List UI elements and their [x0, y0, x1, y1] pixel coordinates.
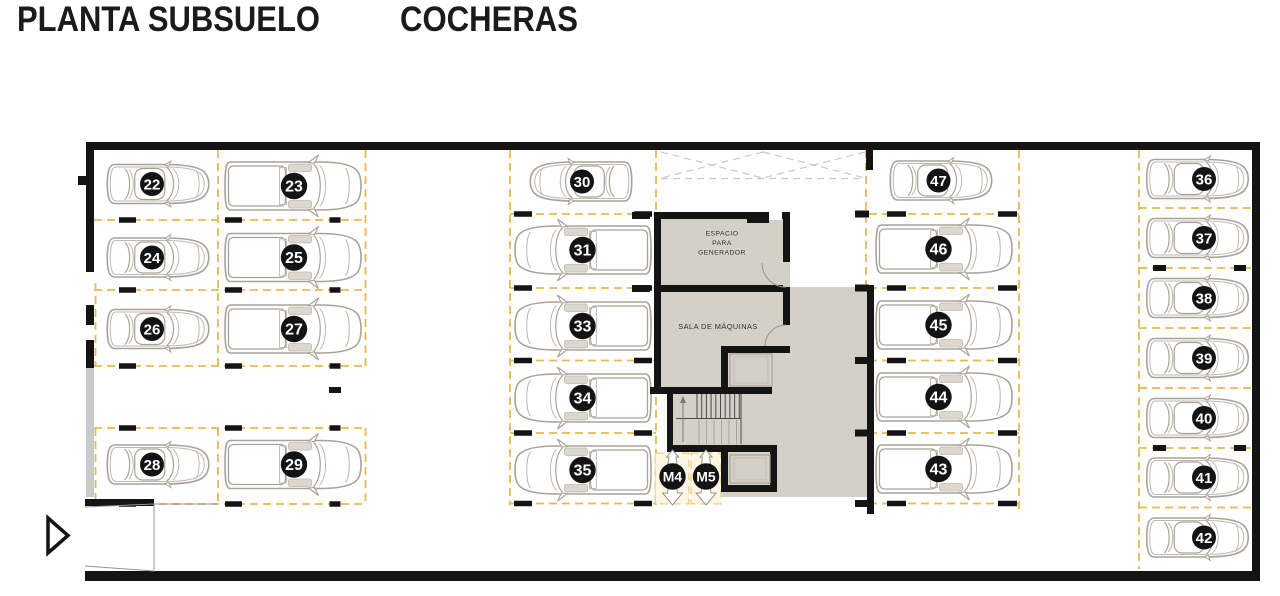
svg-text:38: 38	[1196, 290, 1213, 307]
svg-text:46: 46	[930, 242, 948, 259]
svg-text:M5: M5	[696, 469, 716, 485]
svg-text:M4: M4	[663, 469, 683, 485]
svg-text:25: 25	[285, 250, 303, 267]
svg-text:33: 33	[574, 319, 592, 336]
svg-text:35: 35	[574, 463, 592, 480]
svg-text:GENERADOR: GENERADOR	[698, 250, 746, 257]
svg-text:26: 26	[144, 321, 161, 338]
svg-text:29: 29	[285, 457, 303, 474]
svg-text:24: 24	[144, 250, 161, 267]
svg-text:22: 22	[144, 176, 161, 193]
svg-text:23: 23	[285, 179, 303, 196]
svg-text:30: 30	[574, 174, 591, 191]
svg-text:34: 34	[574, 391, 592, 408]
svg-text:COCHERAS: COCHERAS	[400, 0, 578, 39]
svg-text:ESPACIO: ESPACIO	[706, 231, 739, 238]
svg-text:37: 37	[1196, 230, 1213, 247]
svg-text:40: 40	[1196, 410, 1213, 427]
svg-text:41: 41	[1196, 470, 1213, 487]
svg-text:31: 31	[574, 243, 592, 260]
svg-text:SALA DE MÁQUINAS: SALA DE MÁQUINAS	[678, 322, 758, 331]
svg-text:47: 47	[930, 173, 947, 190]
svg-text:PARA: PARA	[712, 240, 732, 247]
svg-text:PLANTA SUBSUELO: PLANTA SUBSUELO	[17, 0, 320, 39]
svg-text:45: 45	[930, 318, 948, 335]
svg-text:44: 44	[930, 390, 948, 407]
svg-text:39: 39	[1196, 350, 1213, 367]
svg-text:27: 27	[285, 322, 303, 339]
svg-text:43: 43	[930, 462, 948, 479]
svg-text:28: 28	[144, 457, 161, 474]
svg-text:36: 36	[1196, 171, 1213, 188]
svg-text:42: 42	[1196, 530, 1213, 547]
